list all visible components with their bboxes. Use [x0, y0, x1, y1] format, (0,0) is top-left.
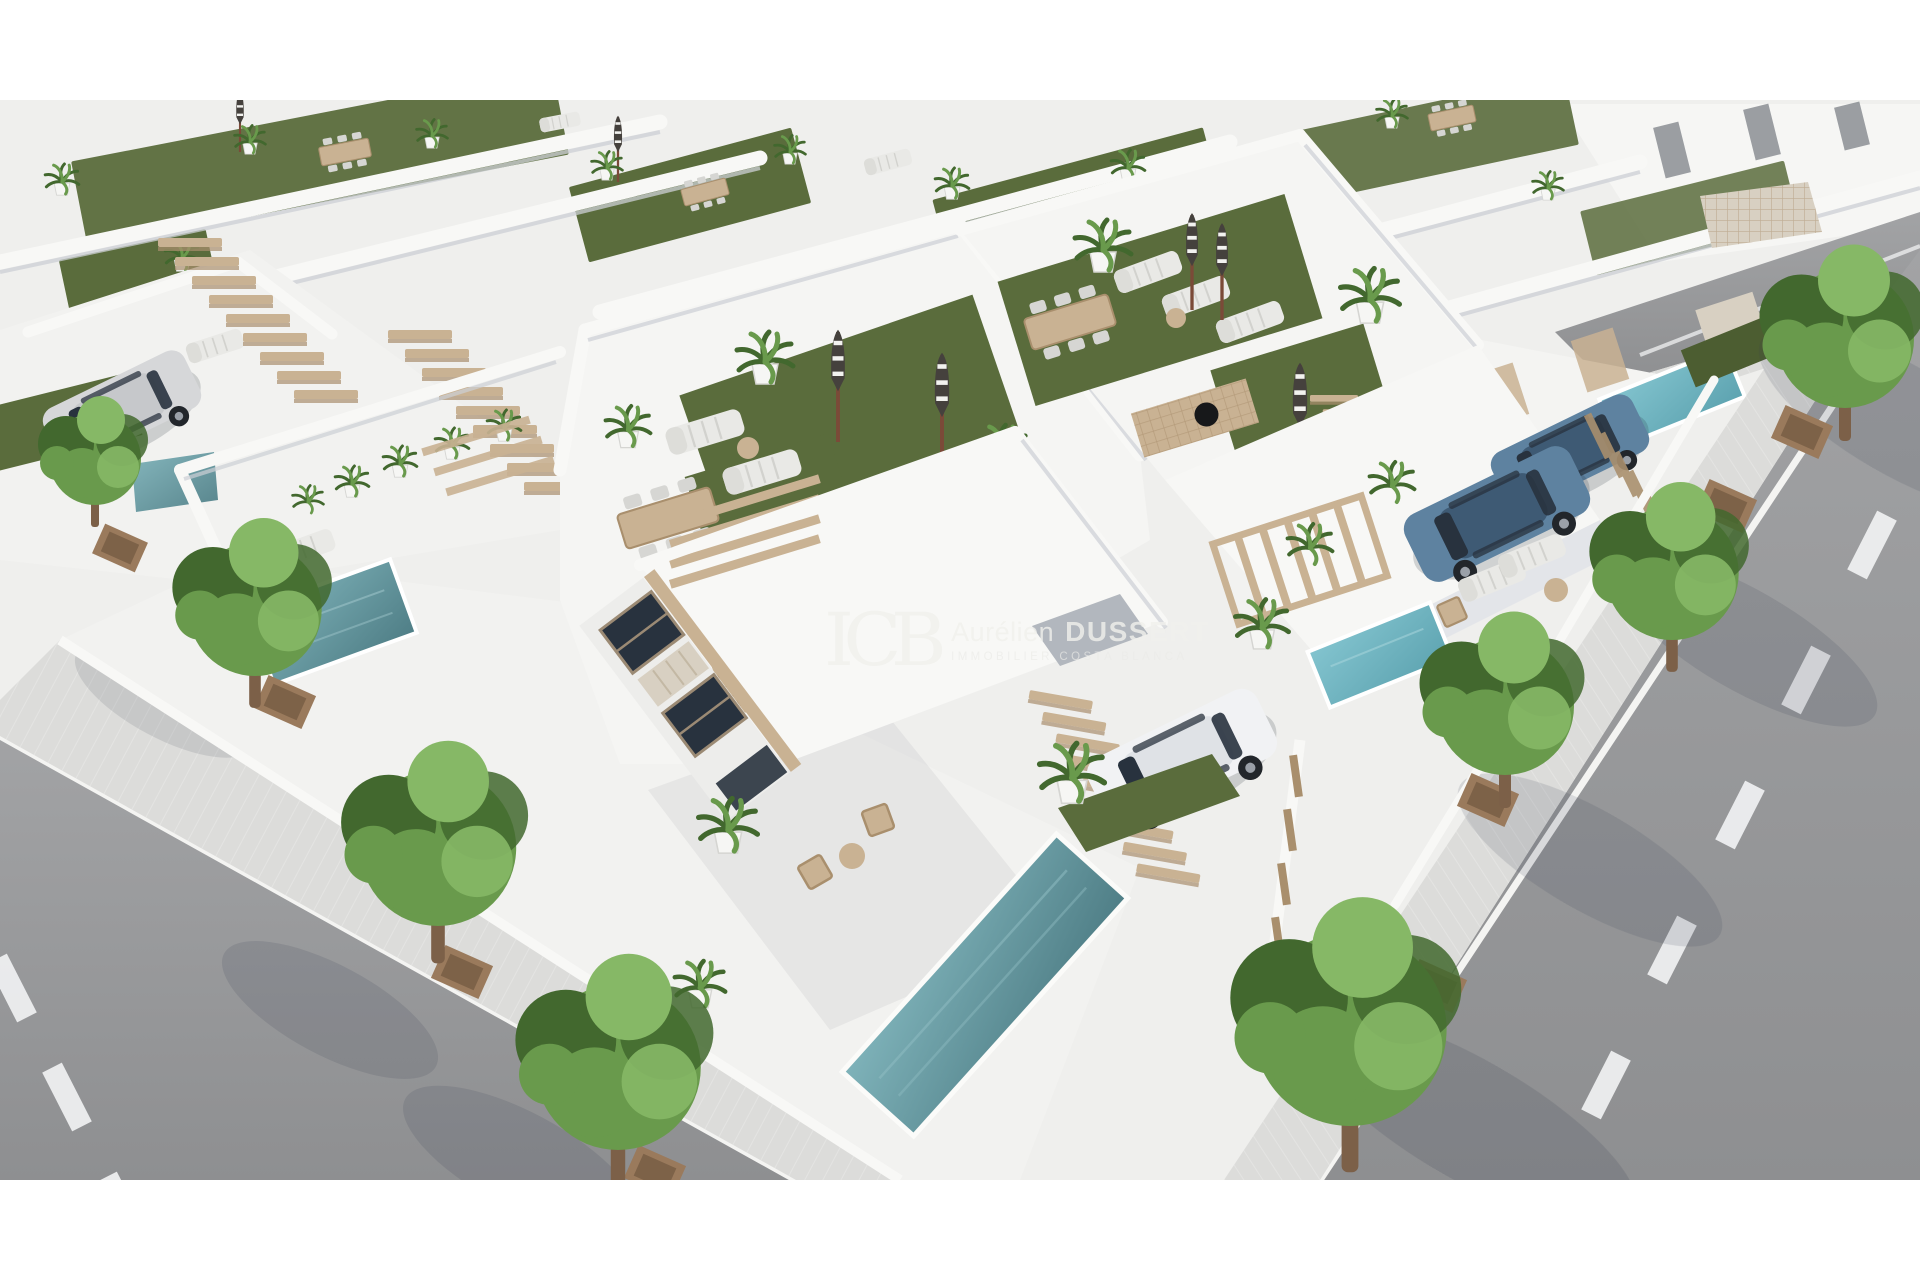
letterbox-bottom: [0, 1180, 1920, 1280]
side-table: [839, 843, 865, 869]
render-photo: [0, 100, 1920, 1180]
property-render-image: ICB Aurélien DUSSERT IMMOBILIER COSTA BL…: [0, 0, 1920, 1280]
letterbox-top: [0, 0, 1920, 100]
render-scene: [0, 100, 1920, 1180]
